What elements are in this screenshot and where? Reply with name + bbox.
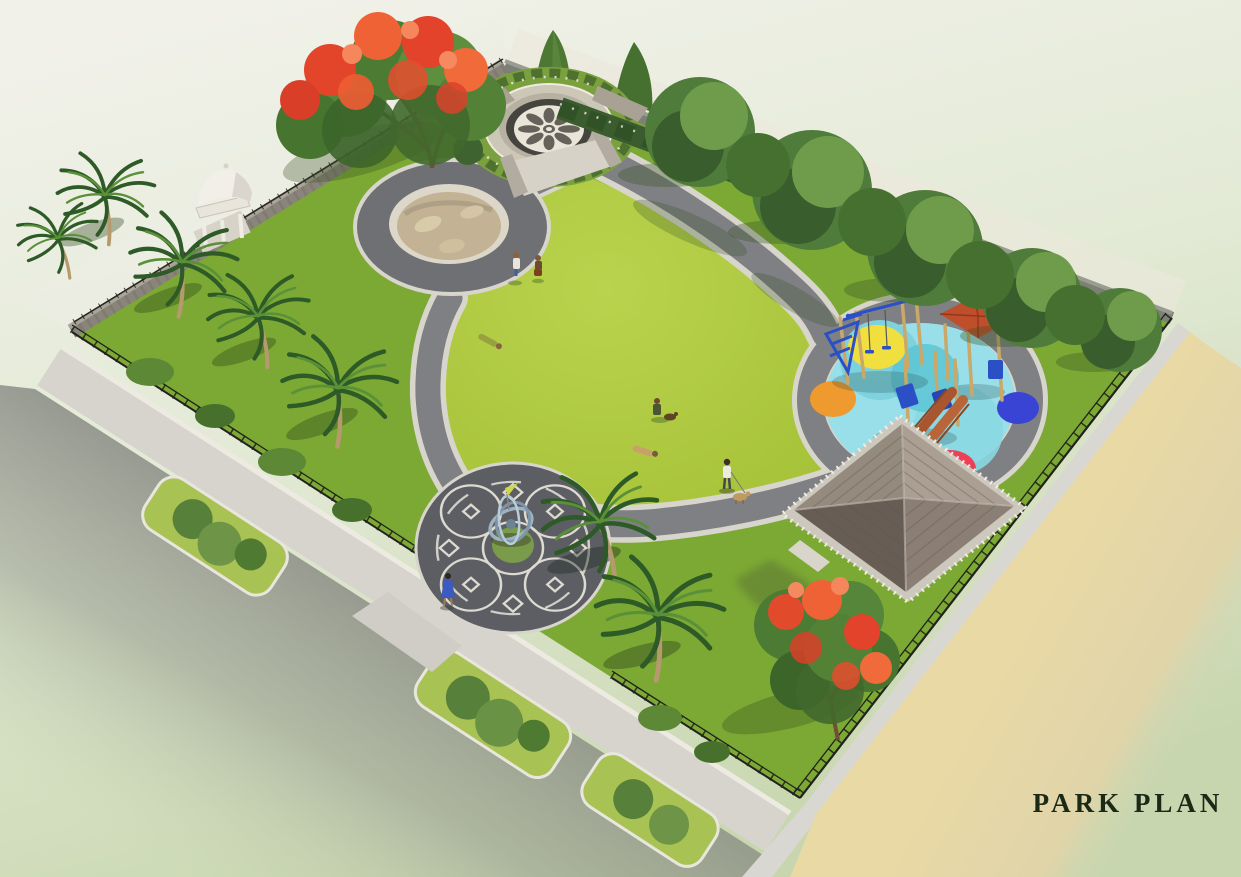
park-plan-canvas: PARK PLAN — [0, 0, 1241, 877]
page-title: PARK PLAN — [1033, 788, 1224, 818]
park-plan-render: PARK PLAN — [0, 0, 1241, 877]
